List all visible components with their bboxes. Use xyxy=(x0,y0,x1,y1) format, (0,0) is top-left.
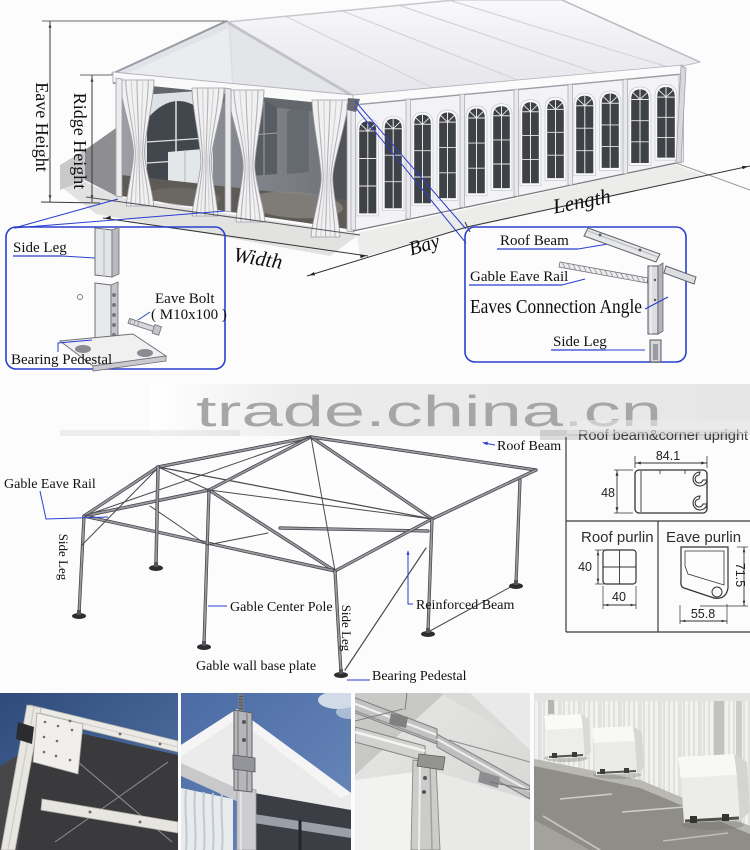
svg-text:Gable Eave Rail: Gable Eave Rail xyxy=(470,269,568,285)
svg-text:Bearing Pedestal: Bearing Pedestal xyxy=(11,352,112,368)
svg-text:40: 40 xyxy=(612,590,626,604)
svg-text:Bearing Pedestal: Bearing Pedestal xyxy=(372,669,467,684)
svg-text:40: 40 xyxy=(578,560,592,574)
svg-text:Roof purlin: Roof purlin xyxy=(581,529,654,546)
svg-text:Gable wall base plate: Gable wall base plate xyxy=(196,659,316,674)
svg-text:Eave Height: Eave Height xyxy=(32,82,52,171)
svg-text:84.1: 84.1 xyxy=(656,449,680,463)
svg-text:Reinforced Beam: Reinforced Beam xyxy=(416,598,514,613)
svg-text:( M10x100 ): ( M10x100 ) xyxy=(151,307,227,323)
svg-text:Roof Beam: Roof Beam xyxy=(497,439,561,454)
svg-text:Eaves Connection Angle: Eaves Connection Angle xyxy=(470,296,642,318)
svg-text:Eave purlin: Eave purlin xyxy=(666,529,741,546)
svg-text:Side Leg: Side Leg xyxy=(553,334,607,350)
svg-text:Side Leg: Side Leg xyxy=(13,240,67,256)
svg-text:Gable Eave Rail: Gable Eave Rail xyxy=(4,477,96,492)
svg-text:Gable Center Pole: Gable Center Pole xyxy=(230,600,333,615)
svg-text:71.5: 71.5 xyxy=(733,563,747,587)
svg-text:Side Leg: Side Leg xyxy=(339,605,354,652)
svg-text:Eave Bolt: Eave Bolt xyxy=(155,291,215,307)
svg-text:Ridge Height: Ridge Height xyxy=(70,93,90,190)
svg-text:55.8: 55.8 xyxy=(691,607,715,621)
svg-text:48: 48 xyxy=(601,486,615,500)
svg-text:Side Leg: Side Leg xyxy=(56,534,71,581)
svg-text:Roof Beam: Roof Beam xyxy=(500,233,569,249)
